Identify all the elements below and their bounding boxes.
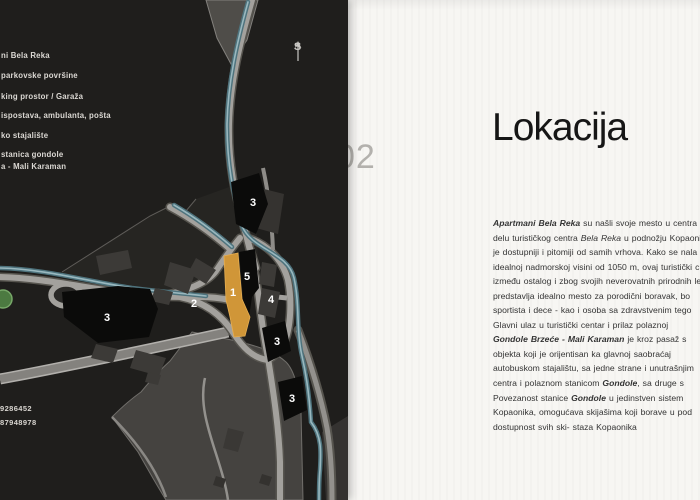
paragraph-line: Apartmani Bela Reka su našli svoje mesto…: [493, 216, 700, 231]
paragraph-line: dostupnost svih ski- staza Kopaonika: [493, 420, 700, 435]
legend-item: stanica gondole: [1, 150, 63, 159]
map-panel: ni Bela Reka parkovske površine king pro…: [0, 0, 348, 500]
zone-label: 2: [191, 298, 197, 310]
zone-label: 3: [250, 197, 256, 209]
zone-label: 3: [274, 336, 280, 348]
phone-number: 87948978: [0, 418, 37, 427]
zone-label: 3: [104, 312, 110, 324]
legend-item: ni Bela Reka: [1, 51, 50, 60]
legend-item: ispostava, ambulanta, pošta: [1, 111, 111, 120]
paragraph-line: autobuskom stajalištu, sa jedne strane i…: [493, 361, 700, 376]
paragraph-line: Povezanost stanice Gondole u jedinstven …: [493, 391, 700, 406]
zone-label: 3: [289, 393, 295, 405]
legend-item: parkovske površine: [1, 71, 78, 80]
legend-item: king prostor / Garaža: [1, 92, 83, 101]
paragraph-line: idealnoj nadmorskoj visini od 1050 m, ov…: [493, 260, 700, 275]
paragraph-line: objekta koji je orijentisan ka glavnoj s…: [493, 347, 700, 362]
north-arrow: S: [288, 40, 308, 53]
paragraph-line: sportista i dece - kao i osoba sa zdravs…: [493, 303, 700, 318]
paragraph-line: delu turističkog centra Bela Reka u podn…: [493, 231, 700, 246]
paragraph-line: centra i polaznom stanicom Gondole, sa d…: [493, 376, 700, 391]
green-landmark: [0, 290, 12, 308]
paragraph-line: Kopaonika, omogućava skijašima koji bora…: [493, 405, 700, 420]
paragraph-line: je dostupniji i pitomiji od samih vrhova…: [493, 245, 700, 260]
paragraph-line: predstavlja idealno mesto za porodični b…: [493, 289, 700, 304]
zone-label: 5: [244, 271, 250, 283]
paragraph: Apartmani Bela Reka su našli svoje mesto…: [493, 216, 700, 434]
paragraph-line: između ostalog i zbog svojih neverovatni…: [493, 274, 700, 289]
north-arrow-icon: [288, 40, 308, 62]
page-title: Lokacija: [492, 106, 627, 150]
phone-number: 9286452: [0, 404, 32, 413]
legend-item: a - Mali Karaman: [1, 162, 66, 171]
paragraph-line: Gondole Brzeće - Mali Karaman je kroz pa…: [493, 332, 700, 347]
zone-label: 4: [268, 294, 274, 306]
brochure-page: { "map": { "legend_lines": [ "ni Bela Re…: [0, 0, 700, 500]
zone-label: 1: [230, 287, 236, 299]
legend-item: ko stajalište: [1, 131, 48, 140]
paragraph-line: Glavni ulaz u turistički centar i prilaz…: [493, 318, 700, 333]
